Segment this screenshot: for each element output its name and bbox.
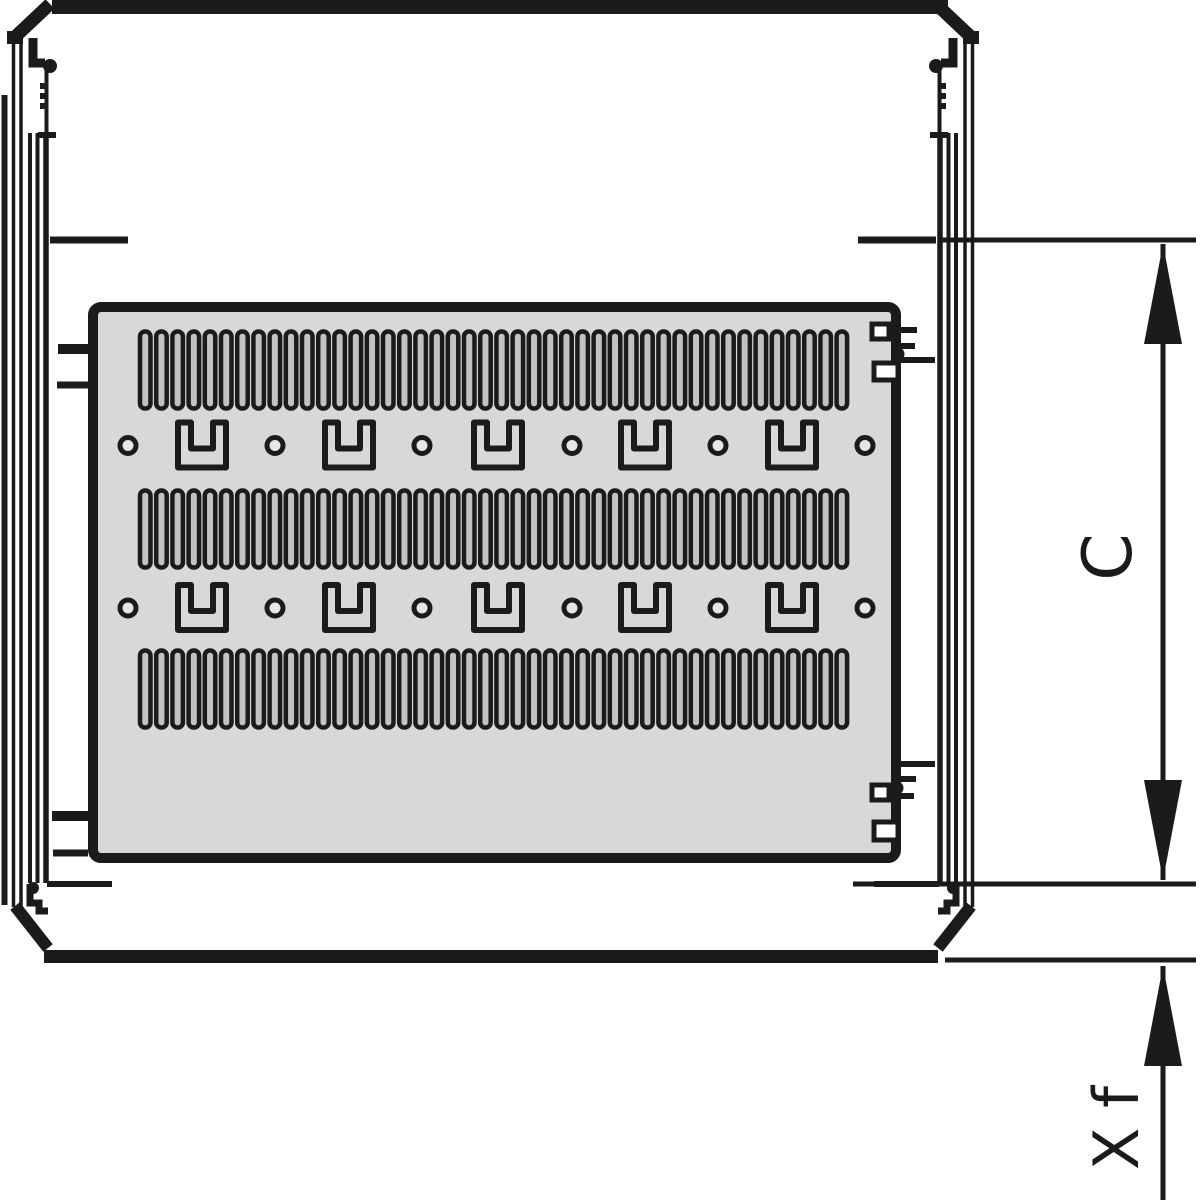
vent-slot bbox=[496, 491, 507, 568]
vent-slot bbox=[270, 651, 281, 728]
vent-slot bbox=[529, 491, 540, 568]
arrowhead-up bbox=[1144, 244, 1182, 344]
mounting-hole bbox=[267, 600, 283, 616]
vent-slot bbox=[432, 491, 443, 568]
vent-slot bbox=[723, 651, 734, 728]
mounting-hole bbox=[857, 600, 873, 616]
mounting-hole bbox=[710, 600, 726, 616]
vent-slot bbox=[837, 651, 848, 728]
vent-slot bbox=[480, 491, 491, 568]
mounting-hole bbox=[857, 438, 873, 454]
vent-slot bbox=[237, 651, 248, 728]
vent-slot bbox=[723, 491, 734, 568]
vent-slot bbox=[286, 332, 297, 409]
vent-slot bbox=[626, 491, 637, 568]
dimension-lines bbox=[1144, 244, 1182, 1200]
vent-slot bbox=[253, 332, 264, 409]
vent-slot bbox=[286, 651, 297, 728]
vent-slot bbox=[448, 332, 459, 409]
vent-slot bbox=[189, 332, 200, 409]
vent-slot bbox=[658, 651, 669, 728]
vent-slot bbox=[820, 332, 831, 409]
vent-slot bbox=[707, 332, 718, 409]
mounting-hole bbox=[267, 438, 283, 454]
arrowhead-up bbox=[1144, 966, 1182, 1066]
vent-slot bbox=[561, 491, 572, 568]
dimension-c bbox=[1144, 244, 1182, 880]
vent-slot bbox=[140, 332, 151, 409]
vent-slot bbox=[577, 651, 588, 728]
vent-slot bbox=[253, 491, 264, 568]
vent-slot bbox=[545, 651, 556, 728]
vent-slot bbox=[334, 332, 345, 409]
vent-slot bbox=[334, 491, 345, 568]
vent-slot bbox=[513, 491, 524, 568]
vent-slot bbox=[318, 332, 329, 409]
vent-slot bbox=[432, 332, 443, 409]
vent-slot bbox=[788, 332, 799, 409]
vent-slot bbox=[399, 332, 410, 409]
vent-slot bbox=[820, 491, 831, 568]
mounting-hole bbox=[710, 438, 726, 454]
vent-slot bbox=[302, 491, 313, 568]
vent-slot bbox=[691, 651, 702, 728]
vent-slot bbox=[140, 651, 151, 728]
vent-slot bbox=[658, 491, 669, 568]
vent-slot bbox=[642, 651, 653, 728]
mounting-hole bbox=[564, 600, 580, 616]
vent-slot bbox=[772, 491, 783, 568]
vent-slot bbox=[756, 332, 767, 409]
vent-slot bbox=[351, 332, 362, 409]
vent-slot bbox=[318, 651, 329, 728]
vent-slot bbox=[383, 332, 394, 409]
vent-slot bbox=[642, 491, 653, 568]
vent-slot bbox=[772, 651, 783, 728]
vent-slot bbox=[270, 332, 281, 409]
vent-slot bbox=[707, 651, 718, 728]
vent-slot bbox=[594, 332, 605, 409]
vent-slot bbox=[464, 332, 475, 409]
vent-slot bbox=[658, 332, 669, 409]
vent-slot bbox=[577, 332, 588, 409]
shelf-tabs-left bbox=[52, 349, 92, 853]
vent-slot bbox=[351, 651, 362, 728]
vent-slot bbox=[367, 491, 378, 568]
vent-slot bbox=[739, 491, 750, 568]
vent-slot bbox=[205, 651, 216, 728]
mounting-hole bbox=[564, 438, 580, 454]
vent-slot bbox=[837, 332, 848, 409]
vent-slot bbox=[432, 651, 443, 728]
vent-slot bbox=[253, 651, 264, 728]
vent-slot bbox=[140, 491, 151, 568]
dimension-xf-label: X f bbox=[1080, 1084, 1153, 1170]
vent-slot bbox=[415, 332, 426, 409]
vent-slot bbox=[561, 332, 572, 409]
vent-slot bbox=[723, 332, 734, 409]
mounting-hole bbox=[414, 438, 430, 454]
vent-slot bbox=[480, 651, 491, 728]
vent-slot bbox=[156, 332, 167, 409]
vent-slot bbox=[464, 651, 475, 728]
technical-drawing-canvas: C X f bbox=[0, 0, 1200, 1200]
mounting-hole bbox=[120, 438, 136, 454]
vent-slot bbox=[302, 332, 313, 409]
vent-slot bbox=[383, 651, 394, 728]
vent-slot bbox=[675, 651, 686, 728]
vent-slot bbox=[594, 651, 605, 728]
vent-slot bbox=[804, 491, 815, 568]
vent-slot bbox=[642, 332, 653, 409]
vent-slot bbox=[480, 332, 491, 409]
vent-slot bbox=[367, 332, 378, 409]
vent-slot bbox=[756, 651, 767, 728]
vent-slot bbox=[415, 491, 426, 568]
vent-slot bbox=[739, 651, 750, 728]
vent-slot bbox=[189, 651, 200, 728]
vent-slot bbox=[286, 491, 297, 568]
vent-slot bbox=[529, 332, 540, 409]
shelf-panel bbox=[52, 307, 935, 858]
vent-slot bbox=[691, 491, 702, 568]
vent-slot bbox=[739, 332, 750, 409]
vent-slot bbox=[788, 491, 799, 568]
vent-slot bbox=[237, 332, 248, 409]
vent-slot bbox=[205, 491, 216, 568]
vent-slot bbox=[610, 332, 621, 409]
vent-slot bbox=[415, 651, 426, 728]
vent-slot bbox=[513, 332, 524, 409]
vent-slot bbox=[577, 491, 588, 568]
vent-slot bbox=[610, 491, 621, 568]
vent-slot bbox=[172, 491, 183, 568]
vent-slot bbox=[772, 332, 783, 409]
vent-slot bbox=[221, 651, 232, 728]
vent-slot bbox=[561, 651, 572, 728]
vent-slot bbox=[237, 491, 248, 568]
dimension-c-label: C bbox=[1069, 533, 1148, 580]
vent-slot bbox=[529, 651, 540, 728]
vent-slot bbox=[189, 491, 200, 568]
vent-slot bbox=[399, 491, 410, 568]
cabinet-bottom-edge bbox=[44, 950, 938, 963]
vent-slot bbox=[318, 491, 329, 568]
vent-slot bbox=[367, 651, 378, 728]
vent-slot bbox=[626, 332, 637, 409]
vent-slot bbox=[156, 491, 167, 568]
vent-slot bbox=[804, 651, 815, 728]
vent-slot bbox=[626, 651, 637, 728]
vent-slot bbox=[172, 651, 183, 728]
vent-slot bbox=[156, 651, 167, 728]
vent-slot bbox=[691, 332, 702, 409]
vent-slot bbox=[448, 491, 459, 568]
vent-slot bbox=[594, 491, 605, 568]
vent-slot bbox=[334, 651, 345, 728]
vent-slot bbox=[496, 332, 507, 409]
vent-slot bbox=[172, 332, 183, 409]
vent-slot bbox=[302, 651, 313, 728]
vent-slot bbox=[383, 491, 394, 568]
vent-slot bbox=[205, 332, 216, 409]
vent-slot bbox=[270, 491, 281, 568]
vent-slot bbox=[448, 651, 459, 728]
cabinet-shelf-diagram: C X f bbox=[0, 0, 1200, 1200]
vent-slot bbox=[221, 332, 232, 409]
vent-slot bbox=[788, 651, 799, 728]
cabinet-top-bar bbox=[52, 0, 948, 14]
mounting-hole bbox=[414, 600, 430, 616]
vent-slot bbox=[351, 491, 362, 568]
vent-slot bbox=[545, 491, 556, 568]
vent-slot bbox=[496, 651, 507, 728]
arrowhead-down bbox=[1144, 780, 1182, 880]
vent-slot bbox=[756, 491, 767, 568]
vent-slot bbox=[837, 491, 848, 568]
mounting-hole bbox=[120, 600, 136, 616]
vent-slot bbox=[464, 491, 475, 568]
vent-slot bbox=[675, 491, 686, 568]
vent-slot bbox=[675, 332, 686, 409]
vent-slot bbox=[804, 332, 815, 409]
vent-slot bbox=[610, 651, 621, 728]
vent-slot bbox=[399, 651, 410, 728]
vent-slot bbox=[513, 651, 524, 728]
vent-slot bbox=[820, 651, 831, 728]
vent-slot bbox=[707, 491, 718, 568]
vent-slot bbox=[221, 491, 232, 568]
vent-slot bbox=[545, 332, 556, 409]
